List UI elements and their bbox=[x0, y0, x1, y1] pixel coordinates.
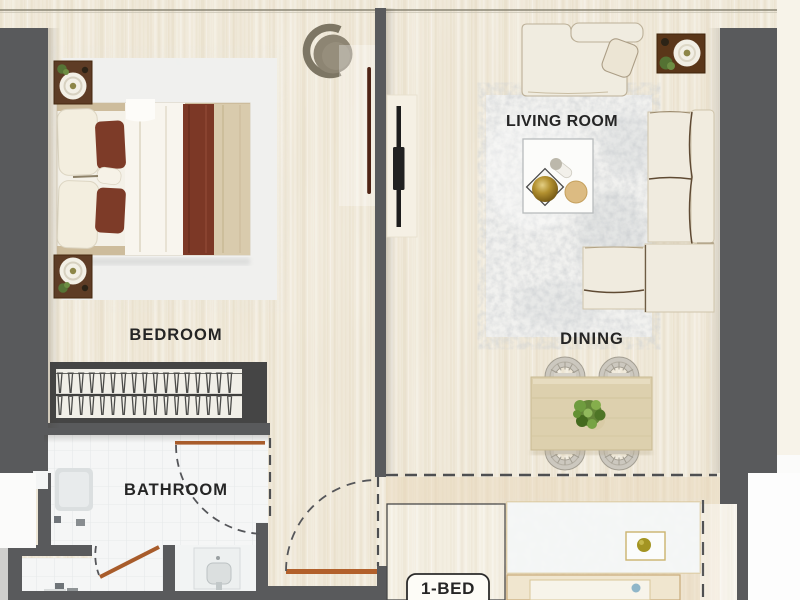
svg-text:BATHROOM: BATHROOM bbox=[124, 481, 228, 499]
svg-text:LIVING ROOM: LIVING ROOM bbox=[506, 113, 618, 130]
svg-text:DINING: DINING bbox=[560, 330, 624, 348]
svg-text:BEDROOM: BEDROOM bbox=[129, 326, 222, 344]
svg-text:1-BED: 1-BED bbox=[421, 579, 475, 598]
